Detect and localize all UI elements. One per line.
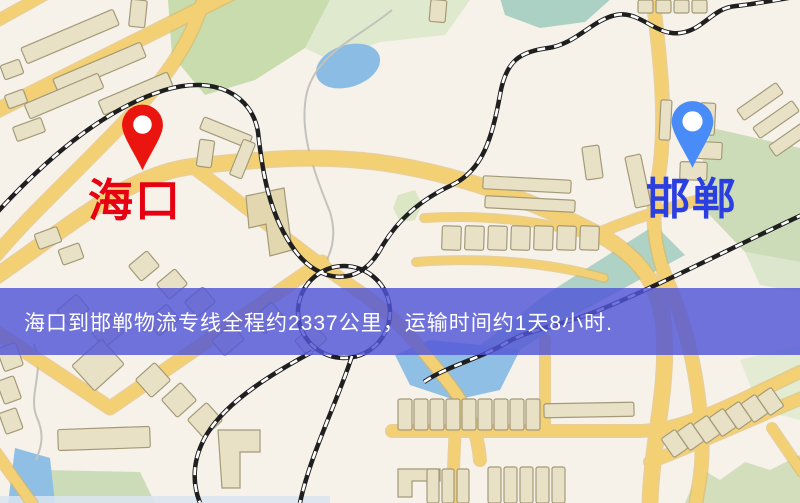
origin-marker (121, 103, 164, 173)
destination-label: 邯郸 (646, 178, 738, 222)
route-banner: 海口到邯郸物流专线全程约2337公里，运输时间约1天8小时. (0, 288, 800, 355)
origin-pin-icon (121, 103, 164, 173)
map-background (0, 0, 800, 503)
route-banner-text: 海口到邯郸物流专线全程约2337公里，运输时间约1天8小时. (0, 307, 613, 337)
destination-marker (668, 100, 717, 170)
origin-label: 海口 (88, 178, 182, 223)
destination-pin-icon (668, 100, 717, 170)
map-canvas: 海口 邯郸 海口到邯郸物流专线全程约2337公里，运输时间约1天8小时. (0, 0, 800, 503)
